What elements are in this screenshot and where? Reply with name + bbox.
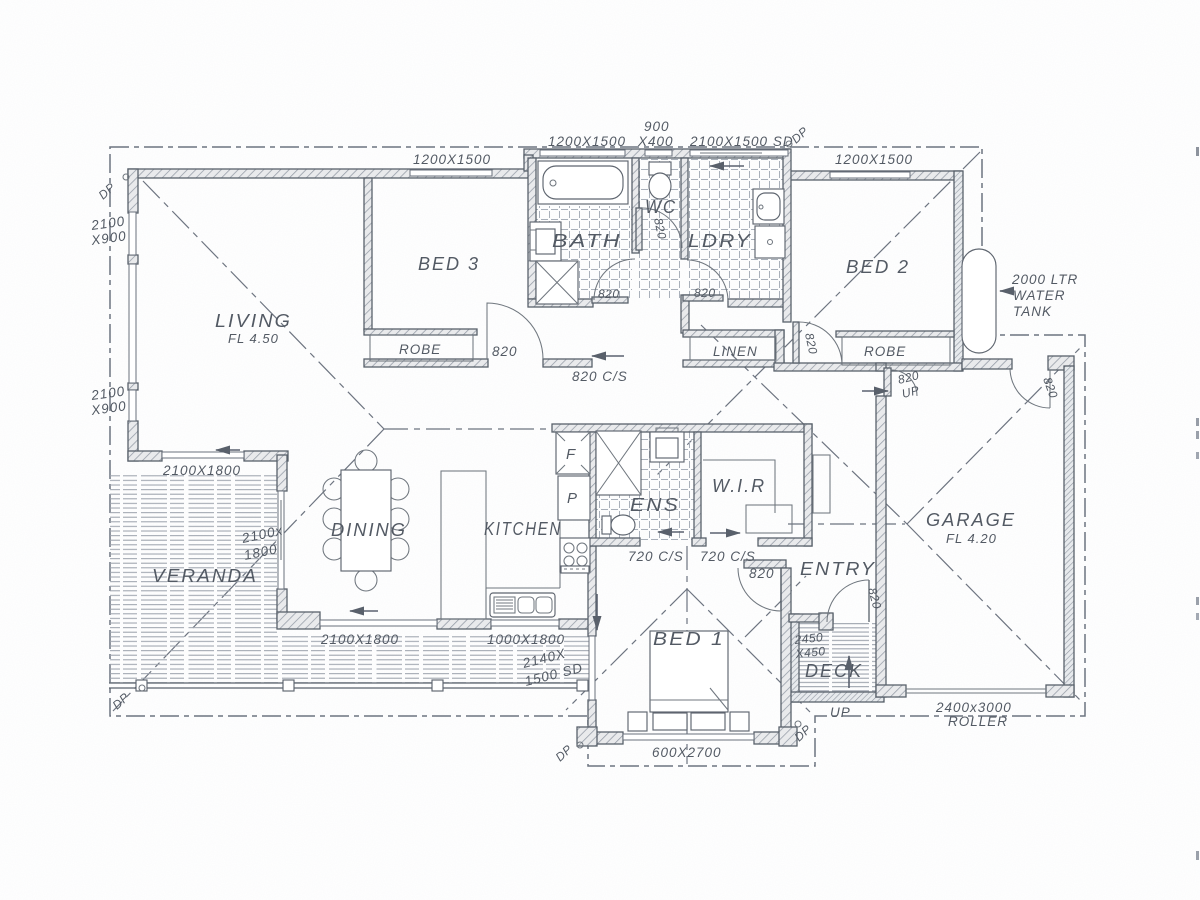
svg-text:X400: X400 <box>637 134 674 149</box>
svg-text:900: 900 <box>644 119 670 134</box>
svg-text:ROLLER: ROLLER <box>948 714 1008 729</box>
svg-text:820: 820 <box>749 566 775 581</box>
svg-text:BED 3: BED 3 <box>418 253 480 274</box>
svg-text:820: 820 <box>598 287 620 301</box>
svg-text:F: F <box>566 446 576 463</box>
svg-text:2400x3000: 2400x3000 <box>935 700 1012 715</box>
svg-text:720 C/S: 720 C/S <box>628 549 684 564</box>
svg-text:820: 820 <box>492 344 518 359</box>
svg-text:VERANDA: VERANDA <box>152 565 258 586</box>
svg-text:BED 1: BED 1 <box>653 628 725 649</box>
svg-text:1000X1800: 1000X1800 <box>487 632 565 647</box>
svg-text:820 C/S: 820 C/S <box>572 369 628 384</box>
svg-text:1200X1500: 1200X1500 <box>835 152 913 167</box>
svg-text:BED 2: BED 2 <box>846 256 910 277</box>
svg-text:2100X1800: 2100X1800 <box>162 463 241 478</box>
svg-text:BATH: BATH <box>552 230 622 251</box>
svg-text:KITCHEN: KITCHEN <box>484 518 562 539</box>
svg-text:GARAGE: GARAGE <box>926 509 1016 530</box>
svg-text:1200X1500: 1200X1500 <box>548 134 626 149</box>
svg-text:2100X1800: 2100X1800 <box>320 632 399 647</box>
svg-text:LIVING: LIVING <box>215 310 292 331</box>
svg-text:ROBE: ROBE <box>399 342 441 357</box>
svg-text:2100X1500 SD: 2100X1500 SD <box>689 134 794 149</box>
svg-text:LDRY: LDRY <box>688 230 752 251</box>
svg-text:720 C/S: 720 C/S <box>700 549 756 564</box>
svg-text:DECK: DECK <box>805 660 863 681</box>
svg-text:TANK: TANK <box>1013 304 1052 319</box>
svg-text:ROBE: ROBE <box>864 344 906 359</box>
svg-text:DINING: DINING <box>331 519 407 540</box>
svg-text:W.I.R: W.I.R <box>712 475 766 496</box>
svg-text:820: 820 <box>694 286 716 300</box>
svg-text:LINEN: LINEN <box>713 344 758 359</box>
svg-text:WC: WC <box>645 196 677 217</box>
svg-text:ENS: ENS <box>630 494 680 515</box>
svg-text:FL 4.50: FL 4.50 <box>228 331 279 346</box>
svg-text:WATER: WATER <box>1013 288 1066 303</box>
svg-text:ENTRY: ENTRY <box>800 558 876 579</box>
svg-text:UP: UP <box>830 705 851 720</box>
svg-text:FL 4.20: FL 4.20 <box>946 531 997 546</box>
svg-text:P: P <box>567 490 577 507</box>
svg-text:2000 LTR: 2000 LTR <box>1011 272 1078 287</box>
svg-text:600X2700: 600X2700 <box>652 745 722 760</box>
svg-text:1200X1500: 1200X1500 <box>413 152 491 167</box>
